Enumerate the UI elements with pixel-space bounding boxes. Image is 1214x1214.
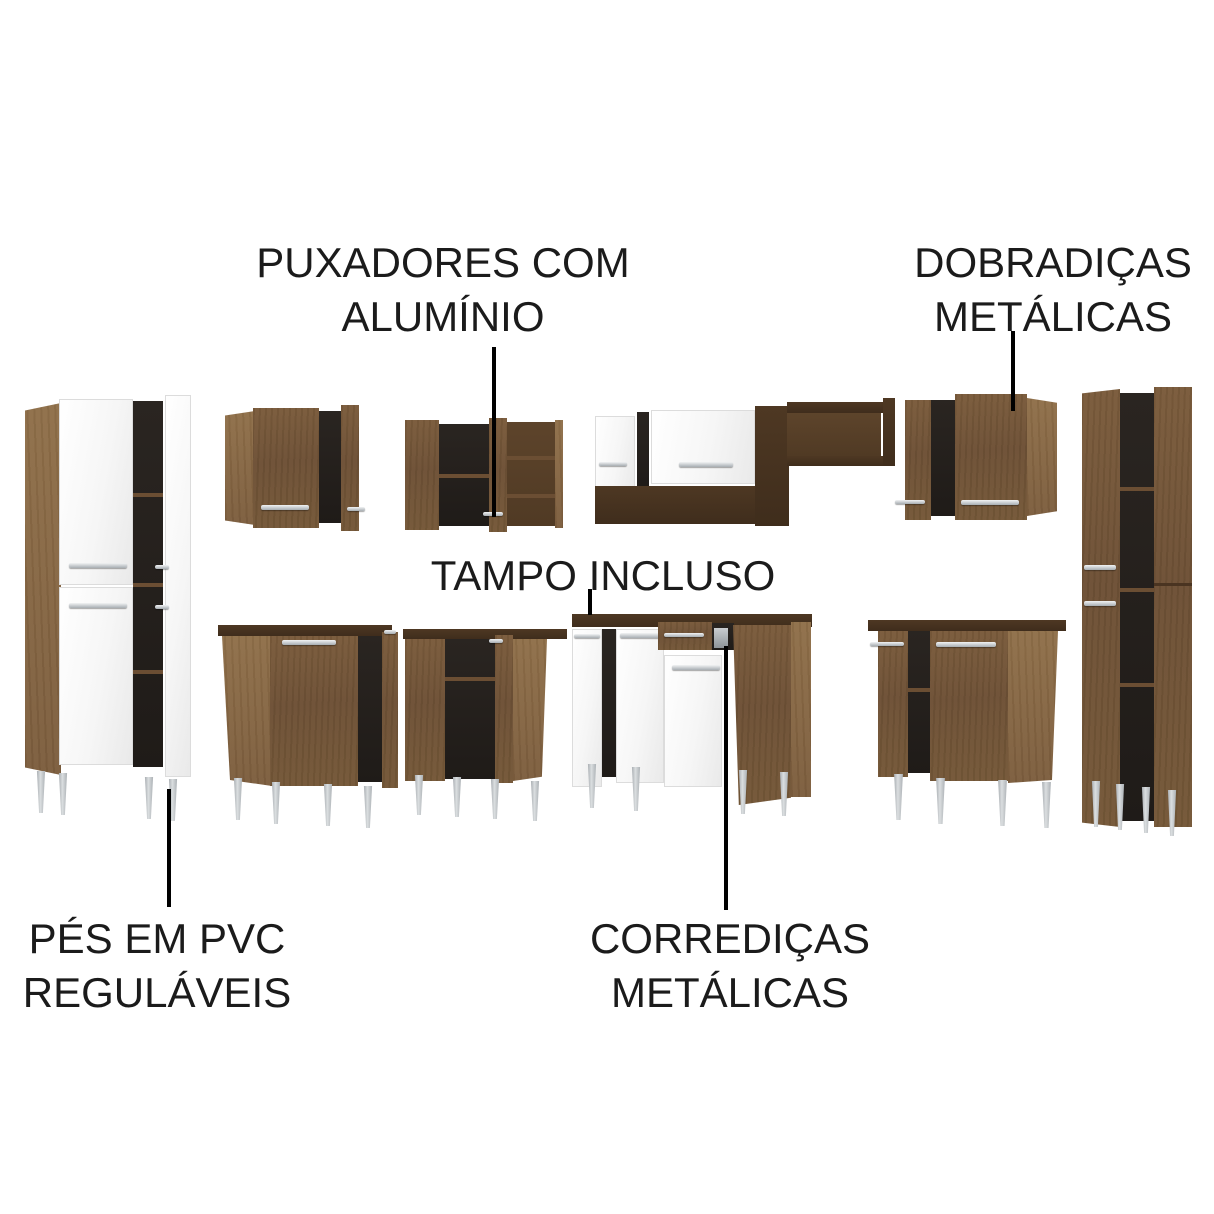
cabinet-open-door [165, 395, 191, 777]
panel-seam [1154, 583, 1192, 586]
cabinet-open-door [572, 629, 602, 787]
shelf [908, 688, 930, 692]
label-handles-line1: PUXADORES COM [243, 236, 643, 290]
countertop [868, 620, 1066, 631]
cabinet-foot [1040, 782, 1053, 828]
cabinet-side-panel [755, 406, 789, 526]
label-hinges: DOBRADIÇAS METÁLICAS [893, 236, 1213, 344]
cabinet-interior [1120, 393, 1154, 821]
cabinet-side-panel [225, 411, 255, 525]
cabinet-side-panel [405, 639, 445, 781]
aluminum-handle [1084, 565, 1116, 570]
cabinet-foot [489, 779, 501, 819]
wall-corner-cabinet-d [903, 390, 1065, 528]
shelf-back-panel [787, 413, 881, 456]
counter-cabinet-with-drawer [572, 612, 812, 810]
cabinet-side-panel [883, 398, 895, 466]
cabinet-foot [529, 781, 541, 821]
cabinet-open-door [1082, 389, 1120, 827]
cabinet-interior [358, 636, 382, 782]
cabinet-door [59, 587, 133, 765]
callout-line-feet [167, 789, 171, 907]
shelf [507, 494, 557, 498]
shelf-board [595, 486, 759, 524]
shelf [1120, 683, 1154, 687]
label-countertop: TAMPO INCLUSO [423, 549, 783, 603]
label-handles: PUXADORES COM ALUMÍNIO [243, 236, 643, 344]
shelf [1120, 588, 1154, 592]
shelf [133, 583, 163, 587]
cabinet-side-panel [405, 420, 439, 530]
cabinet-foot [934, 778, 947, 824]
cabinet-interior [445, 639, 495, 779]
cabinet-side-panel [791, 622, 811, 797]
cabinet-open-door [382, 632, 398, 788]
cabinet-door [651, 410, 755, 484]
cabinet-interior [931, 400, 955, 516]
aluminum-handle [679, 462, 733, 467]
base-cabinet-h [868, 618, 1070, 823]
aluminum-handle [1084, 601, 1116, 606]
shelf [133, 493, 163, 497]
cabinet-foot [57, 773, 69, 815]
label-hinges-line1: DOBRADIÇAS [893, 236, 1213, 290]
shelf [133, 670, 163, 674]
cabinet-open-door [495, 635, 513, 783]
aluminum-handle [69, 563, 127, 568]
cabinet-foot [413, 775, 425, 815]
label-handles-line2: ALUMÍNIO [243, 290, 643, 344]
shelf-back-panel [507, 422, 557, 526]
cabinet-foot [143, 777, 155, 819]
shelf-board [787, 402, 893, 413]
kitchen-set-annotated-image: PUXADORES COM ALUMÍNIO DOBRADIÇAS METÁLI… [0, 0, 1214, 1214]
cabinet-foot [451, 777, 463, 817]
aluminum-handle [155, 605, 169, 609]
drawer-slide [714, 628, 728, 648]
cabinet-foot [892, 774, 905, 820]
aluminum-handle [384, 630, 396, 634]
aluminum-handle [347, 507, 365, 511]
aluminum-handle [664, 633, 704, 637]
cabinet-door [253, 408, 319, 528]
label-countertop-line1: TAMPO INCLUSO [423, 549, 783, 603]
cabinet-open-door [595, 416, 635, 490]
cabinet-foot [322, 784, 334, 826]
shelf [439, 474, 489, 478]
cabinet-open-door [341, 405, 359, 531]
base-cabinet-f [403, 625, 569, 797]
cabinet-foot [232, 778, 244, 820]
aluminum-handle [936, 642, 996, 647]
aluminum-handle [599, 462, 627, 466]
cabinet-side-panel [1027, 398, 1057, 516]
cabinet-foot [996, 780, 1009, 826]
aluminum-handle [69, 603, 127, 608]
label-hinges-line2: METÁLICAS [893, 290, 1213, 344]
aluminum-handle [672, 665, 720, 670]
aluminum-handle [155, 565, 169, 569]
label-feet: PÉS EM PVC REGULÁVEIS [2, 912, 312, 1020]
shelf [1120, 487, 1154, 491]
label-slides-line1: CORREDIÇAS [575, 912, 885, 966]
shelf [445, 677, 495, 681]
wall-cabinet-b [405, 416, 563, 534]
cabinet-foot [362, 786, 374, 828]
label-slides: CORREDIÇAS METÁLICAS [575, 912, 885, 1020]
cabinet-door [59, 399, 133, 585]
cabinet-interior [319, 411, 341, 523]
cabinet-side-panel [222, 636, 272, 786]
cabinet-interior [908, 631, 930, 773]
aluminum-handle [961, 500, 1019, 505]
label-slides-line2: METÁLICAS [575, 966, 885, 1020]
base-cabinet-e [218, 622, 394, 814]
wall-shelf-unit-c [595, 398, 895, 530]
cabinet-side-panel [513, 639, 547, 781]
aluminum-handle [895, 500, 925, 504]
aluminum-handle [574, 634, 600, 638]
callout-line-handles [492, 347, 496, 517]
tall-cabinet-left [25, 393, 190, 823]
shelf [507, 456, 557, 460]
cabinet-door [270, 636, 358, 786]
aluminum-handle [261, 505, 309, 510]
cabinet-door [664, 655, 722, 787]
cabinet-side-panel [1154, 387, 1192, 827]
aluminum-handle [489, 639, 503, 643]
aluminum-handle [282, 640, 336, 645]
cabinet-side-panel [1008, 631, 1058, 783]
label-feet-line2: REGULÁVEIS [2, 966, 312, 1020]
cabinet-open-door [878, 631, 908, 777]
cabinet-foot [270, 782, 282, 824]
callout-line-slides [724, 646, 728, 910]
cabinet-door [616, 629, 664, 783]
wall-corner-cabinet-a [225, 405, 367, 533]
cabinet-side-panel [555, 420, 563, 528]
cabinet-interior [637, 412, 649, 490]
tall-cabinet-right [1082, 383, 1194, 841]
cabinet-foot [35, 771, 47, 813]
cabinet-side-panel [25, 403, 61, 775]
label-feet-line1: PÉS EM PVC [2, 912, 312, 966]
shelf-board [787, 456, 893, 466]
aluminum-handle [870, 642, 904, 646]
cabinet-interior [602, 629, 616, 777]
cabinet-door [930, 631, 1008, 781]
countertop [218, 625, 392, 636]
countertop [403, 629, 567, 639]
